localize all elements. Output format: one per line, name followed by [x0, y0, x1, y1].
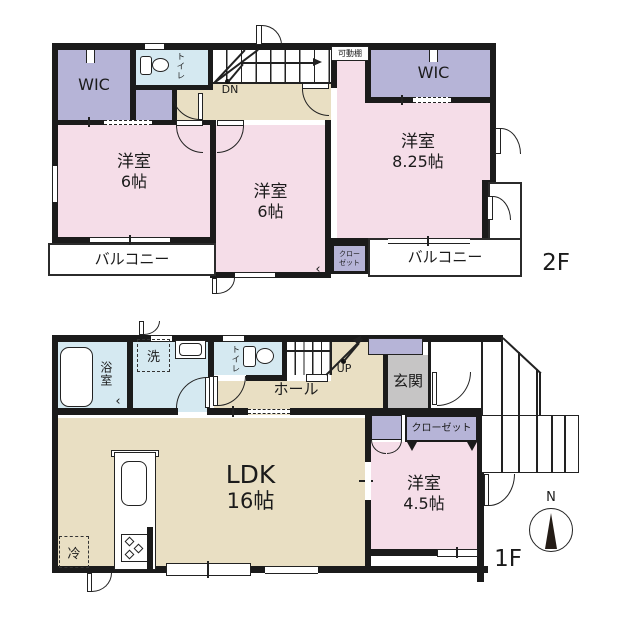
- floor2-text: 2F: [542, 250, 570, 276]
- closet-door-mark: [407, 442, 417, 451]
- floor-plan-canvas: { "floor2": { "label": "2F", "wic_left":…: [0, 0, 620, 620]
- fridge-text: 冷: [67, 543, 80, 562]
- closet-1f-text: クローゼット: [412, 423, 472, 435]
- wall: [147, 527, 153, 570]
- porch-step-line: [481, 342, 483, 415]
- toilet-bowl-icon: [256, 348, 274, 364]
- porch-step-line: [564, 415, 566, 473]
- balcony-right-label: バルコニー: [368, 238, 522, 277]
- wall: [290, 408, 383, 415]
- window: [437, 549, 478, 557]
- wall: [383, 408, 482, 415]
- toilet-1f-label: トイレ: [227, 342, 241, 376]
- tick: [456, 547, 458, 558]
- window-casement-arc: [144, 321, 160, 335]
- room-825-size: 8.25帖: [392, 153, 444, 171]
- wall: [133, 408, 178, 415]
- movable-shelf-text: 可動棚: [338, 49, 362, 58]
- window-casement-arc: [217, 278, 235, 294]
- window: [265, 566, 318, 574]
- floor2-label: 2F: [534, 248, 578, 278]
- tick: [207, 561, 209, 578]
- balcony-left-text: バルコニー: [95, 251, 170, 268]
- wall: [207, 408, 248, 415]
- window: [235, 272, 275, 278]
- north-text: N: [546, 491, 556, 506]
- wall: [428, 342, 431, 412]
- up-text: UP: [337, 363, 352, 376]
- porch-step-line: [518, 352, 520, 415]
- fold-arrow: ‹: [315, 263, 320, 278]
- room-6jo-west-name: 洋室: [117, 153, 151, 173]
- room-2f-east-825jo-lower: [337, 186, 482, 238]
- porch-step-line: [501, 337, 503, 415]
- wall: [282, 342, 287, 375]
- wall: [52, 335, 58, 573]
- closet-2f-line2: ゼット: [339, 259, 360, 267]
- porch-step-line: [551, 415, 553, 473]
- kitchen-sink-icon: [121, 461, 147, 506]
- window: [223, 335, 244, 342]
- entrance-text: 玄関: [393, 373, 423, 390]
- door-arc: [437, 372, 471, 406]
- hall-label: ホール: [256, 379, 336, 401]
- wall: [52, 335, 503, 342]
- toilet-tank-icon: [243, 346, 256, 367]
- stair-rail-line: [287, 350, 331, 352]
- refrigerator-icon: 冷: [59, 536, 89, 568]
- window: [52, 166, 58, 202]
- bath-fold-mark: ‹: [112, 394, 124, 410]
- stairs-1f-icon: [287, 342, 331, 375]
- bathtub-icon: [60, 347, 93, 407]
- wic-left-text: WIC: [78, 76, 110, 94]
- toilet-1f-text: トイレ: [229, 345, 239, 374]
- porch-step-line: [536, 369, 538, 415]
- tick: [232, 406, 234, 417]
- room-45jo-name: 洋室: [407, 475, 441, 495]
- wic-right-text: WIC: [418, 64, 450, 82]
- room-45jo-size: 4.5帖: [403, 495, 444, 513]
- closet-2f-line1: クロー: [339, 250, 360, 258]
- wic-left-label: WIC: [58, 50, 130, 120]
- stairs-up-label: UP: [331, 362, 357, 377]
- toilet-bowl-icon: [152, 58, 169, 72]
- porch-step-line: [536, 415, 538, 473]
- hall-text: ホール: [273, 381, 318, 398]
- ldk-size: 16帖: [227, 489, 275, 513]
- toilet-2f-text: トイレ: [174, 52, 184, 81]
- entrance-label: 玄関: [388, 370, 428, 394]
- wall: [208, 47, 213, 85]
- balcony-right-text: バルコニー: [408, 249, 483, 266]
- bath-text: 浴室: [98, 361, 112, 387]
- stair-route-line: [242, 62, 318, 64]
- bath-label: 浴室: [96, 350, 114, 398]
- room-45jo-label: 洋室 4.5帖: [371, 468, 477, 520]
- window-casement-arc: [262, 25, 282, 45]
- closet-opening: [104, 120, 152, 125]
- porch-step-line: [518, 415, 520, 473]
- movable-shelf-label: 可動棚: [331, 46, 369, 61]
- room-6jo-mid-name: 洋室: [254, 183, 288, 203]
- wall: [208, 342, 214, 377]
- mini-closet-1f: [371, 415, 402, 440]
- room-6jo-west-size: 6帖: [121, 173, 147, 191]
- door-arc: [92, 573, 112, 592]
- door-arc: [489, 474, 515, 506]
- stair-arrow-icon: [313, 58, 322, 66]
- room-825-label: 洋室 8.25帖: [356, 126, 480, 178]
- balcony-left-label: バルコニー: [48, 243, 216, 276]
- floor1-text: 1F: [494, 546, 522, 572]
- ldk-label: LDK 16帖: [178, 458, 323, 516]
- porch-step-line: [539, 372, 541, 415]
- room-825-name: 洋室: [401, 133, 435, 153]
- room-6jo-mid-size: 6帖: [257, 203, 283, 221]
- sink-basin-icon: [179, 343, 202, 356]
- fold-arrow: ‹: [115, 395, 120, 410]
- porch-step-diagonal: [502, 337, 541, 374]
- sliding-opening: [248, 409, 290, 414]
- washer-text: 洗: [147, 346, 160, 365]
- closet-2f-fold-mark: ‹: [312, 262, 324, 278]
- mini-closet-2f: [136, 90, 172, 120]
- wic-right-label: WIC: [371, 50, 496, 97]
- closet-2f-label: クロー ゼット: [331, 243, 368, 274]
- compass-needle-icon: [545, 513, 557, 549]
- toilet-tank-icon: [140, 56, 152, 75]
- porch-step-line: [501, 415, 503, 473]
- toilet-2f-label: トイレ: [172, 48, 186, 84]
- closet-opening: [413, 97, 451, 103]
- compass-north-label: N: [543, 490, 559, 506]
- stairs-dn-label: DN: [212, 83, 248, 98]
- floor1-label: 1F: [486, 544, 530, 574]
- closet-door-mark: [467, 442, 477, 451]
- washing-machine-icon: 洗: [137, 339, 170, 372]
- door-arc: [501, 128, 521, 154]
- wall: [127, 342, 133, 412]
- window: [145, 43, 164, 50]
- room-6jo-west-label: 洋室 6帖: [78, 146, 190, 198]
- shoe-cabinet: [368, 338, 423, 355]
- room-6jo-mid-label: 洋室 6帖: [216, 176, 325, 228]
- dn-text: DN: [222, 84, 239, 97]
- closet-1f-label: クローゼット: [405, 415, 478, 442]
- ldk-name: LDK: [226, 461, 276, 490]
- window-sliding: [166, 563, 251, 576]
